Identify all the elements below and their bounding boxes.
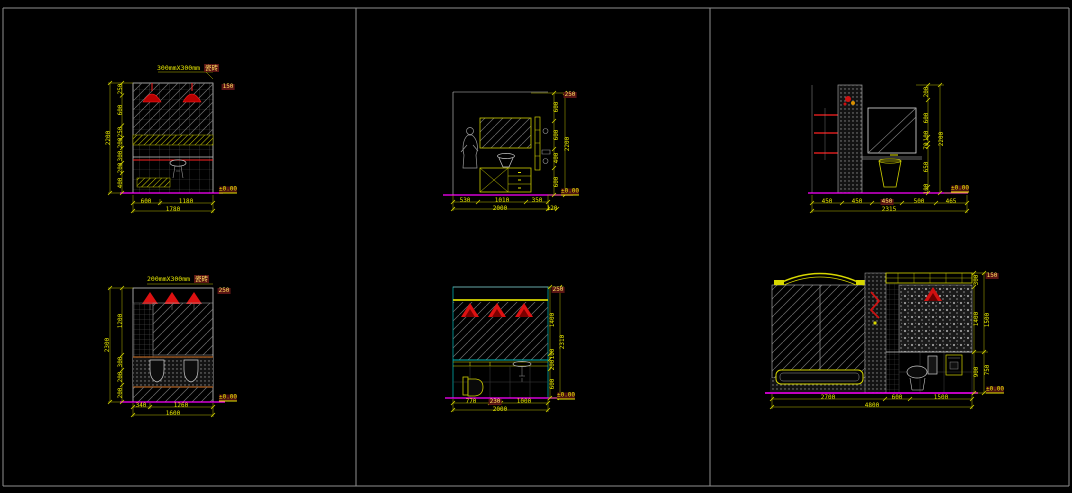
- level-marker: ±0.00: [951, 186, 969, 193]
- level-marker: ±0.00: [219, 395, 237, 402]
- dim-label: 70: [924, 142, 930, 149]
- bathtub: [776, 370, 863, 384]
- ceiling-band: [886, 273, 972, 283]
- dim-label: 600: [554, 177, 560, 188]
- dim-label: 1180: [179, 199, 193, 205]
- dim-total: 4800: [865, 403, 879, 409]
- dim-label: 500: [914, 199, 925, 205]
- tile-column: [133, 303, 153, 357]
- level-marker: ±0.00: [561, 189, 579, 196]
- counter: [453, 362, 548, 366]
- dim-label: 900: [974, 367, 980, 378]
- dim-label: 1000: [517, 399, 531, 405]
- level-marker: ±0.00: [557, 393, 575, 400]
- elevation-6-graphics: [765, 271, 994, 409]
- dim-label: 770: [466, 399, 477, 405]
- dim-label: 400: [118, 178, 124, 189]
- tile-size-label: 200mmX300mm: [147, 275, 190, 283]
- dim-label: 200: [118, 388, 124, 399]
- dim-total: 2315: [882, 207, 896, 213]
- tile-word-label: 瓷砖: [194, 275, 209, 283]
- backsplash-hatch: [133, 135, 213, 145]
- dim-label: 250: [118, 84, 124, 95]
- dim-label: 2700: [821, 395, 835, 401]
- skirting-hatch: [137, 178, 170, 187]
- shower-glass: [772, 285, 865, 378]
- vessel-sink: [498, 153, 515, 167]
- tile-size-label: 300mmX300mm: [157, 64, 200, 72]
- dim-label: 530: [460, 198, 471, 204]
- dim-label: 600: [550, 379, 556, 390]
- pedestal-sink: [879, 159, 901, 187]
- dim-total: 750: [985, 365, 991, 376]
- dim-label: 200: [118, 163, 124, 174]
- arch-canopy: [774, 274, 866, 286]
- dim-total: 2200: [939, 132, 945, 146]
- dim-label: 1200: [118, 314, 124, 328]
- level-marker: ±0.00: [219, 187, 237, 194]
- dim-label: 600: [141, 199, 152, 205]
- dim-total: 1600: [166, 411, 180, 417]
- dim-label: 300: [118, 151, 124, 162]
- dim-label: 600: [118, 105, 124, 116]
- dim-label: 200: [118, 138, 124, 149]
- mirror: [868, 108, 916, 155]
- person-figure: [461, 128, 478, 169]
- elevation-1-graphics: [108, 72, 223, 213]
- dim-total: 2000: [493, 206, 507, 212]
- dim-label: 200: [118, 372, 124, 383]
- vanity-cabinet: [480, 168, 531, 192]
- note: 250: [564, 92, 577, 98]
- dim-label: 1500: [934, 395, 948, 401]
- dim-label: 450: [822, 199, 833, 205]
- dim-label: 250: [118, 127, 124, 138]
- dim-label: 230: [489, 399, 502, 405]
- dim-label: 400: [554, 153, 560, 164]
- toilet: [463, 377, 483, 396]
- dim-label: 1010: [495, 198, 509, 204]
- note: 250: [552, 287, 565, 293]
- toilet: [907, 356, 937, 390]
- dim-label: 100: [924, 131, 930, 142]
- cad-drawing: [0, 0, 1072, 493]
- dim-label: 300: [118, 357, 124, 368]
- tile-word-label: 瓷砖: [204, 64, 219, 72]
- elevation-3-graphics: [808, 83, 969, 213]
- dim-total: 2200: [565, 137, 571, 151]
- dim-label: 450: [881, 199, 894, 205]
- mirror: [153, 303, 213, 355]
- dim-label: 100: [924, 184, 930, 195]
- dim-label: 600: [554, 102, 560, 113]
- dim-label: 350: [532, 198, 543, 204]
- dim-label: 200: [550, 360, 556, 371]
- dim-total: 2200: [106, 131, 112, 145]
- dim-label: 465: [946, 199, 957, 205]
- dim-label: 650: [924, 162, 930, 173]
- mosaic-column: [865, 273, 886, 393]
- dim-label: 100: [550, 349, 556, 360]
- panel-title: 300mmX300mm 瓷砖: [157, 65, 219, 72]
- dim-total: 2000: [493, 407, 507, 413]
- note: 250: [218, 288, 231, 294]
- dim-label: 1260: [174, 403, 188, 409]
- dim-label: 450: [852, 199, 863, 205]
- note: 150: [986, 273, 999, 279]
- mosaic-band: [133, 357, 213, 387]
- mirror: [480, 118, 531, 148]
- elevation-4-graphics: [108, 284, 225, 417]
- dim-label: 600: [924, 113, 930, 124]
- dim-total: 1500: [985, 313, 991, 327]
- dim-label: 1400: [550, 313, 556, 327]
- dim-label: 600: [892, 395, 903, 401]
- sheet-frame: [3, 8, 1069, 486]
- note: 150: [222, 84, 235, 90]
- dim-total: 1780: [166, 207, 180, 213]
- panel-title: 200mmX300mm 瓷砖: [147, 276, 209, 283]
- wall-shelves: [814, 108, 838, 160]
- dim-label: 600: [554, 130, 560, 141]
- dim-label: 340: [136, 403, 147, 409]
- side-shelf: [535, 117, 550, 170]
- dim-label: 1400: [974, 312, 980, 326]
- dim-label: 120: [547, 206, 558, 212]
- dim-label: 200: [924, 87, 930, 98]
- dim-total: 2310: [560, 335, 566, 349]
- level-marker: ±0.00: [986, 387, 1004, 394]
- dim-total: 2300: [105, 338, 111, 352]
- basin: [513, 361, 531, 382]
- cad-viewport[interactable]: 300mmX300mm 瓷砖 250 600 250 200 300 200 4…: [0, 0, 1072, 493]
- dim-label: 300: [974, 275, 980, 286]
